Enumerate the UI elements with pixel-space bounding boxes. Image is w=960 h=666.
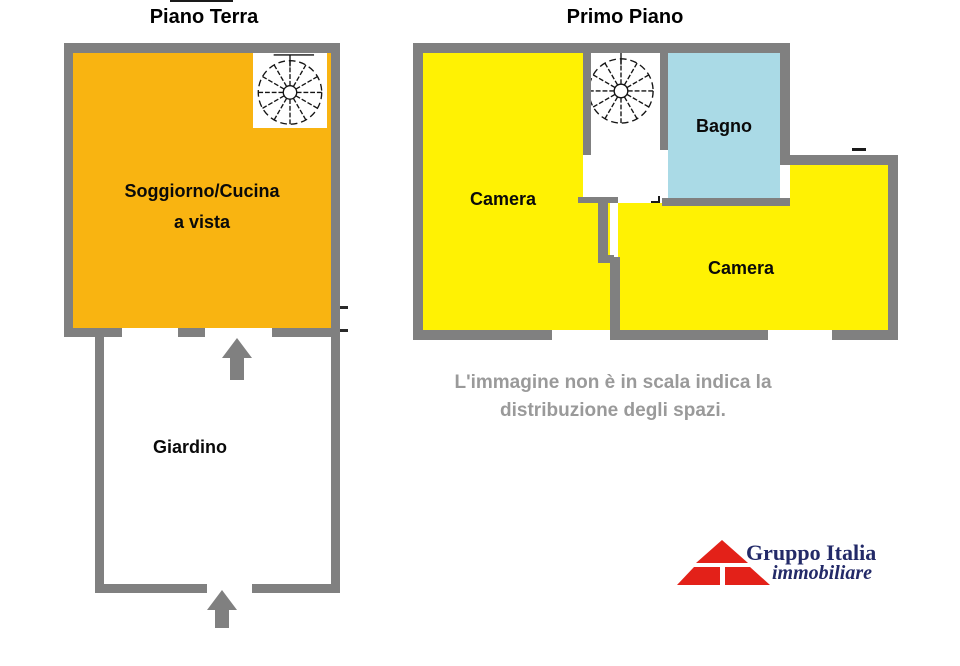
spiral-staircase-icon [253, 53, 327, 128]
top-edge-artifact [170, 0, 233, 2]
disclaimer-line1: L'immagine non è in scala indica la [410, 369, 816, 397]
garden-wall-bottom-left [95, 584, 207, 593]
up-arrow-icon [207, 590, 237, 610]
wall-top [413, 43, 790, 53]
living-room-label-line1: Soggiorno/Cucina [73, 176, 331, 207]
staircase-box [253, 53, 327, 128]
disclaimer-line2: distribuzione degli spazi. [410, 397, 816, 425]
wall-bottom-segment [413, 330, 552, 340]
camera-left-label: Camera [423, 184, 583, 215]
ground-floor-title: Piano Terra [64, 6, 344, 29]
garden-wall-bottom-right [252, 584, 340, 593]
wall-tick [852, 148, 866, 151]
garden-label: Giardino [95, 432, 285, 463]
wall-tick [340, 329, 348, 332]
bathroom-wall-left [660, 53, 668, 150]
wall-top [64, 43, 340, 53]
camera-right-label: Camera [641, 253, 841, 284]
wall-right [888, 155, 898, 340]
wall-bottom-stub [178, 328, 205, 337]
camera-divider-wall [598, 197, 608, 257]
bathroom-wall-right [780, 43, 790, 165]
scale-disclaimer: L'immagine non è in scala indica la dist… [410, 369, 816, 425]
door-swing-mark [658, 196, 660, 203]
living-room-label: Soggiorno/Cucina a vista [73, 176, 331, 238]
camera-right-area [790, 165, 888, 330]
living-room-label-line2: a vista [73, 207, 331, 238]
wall-tick [340, 306, 348, 309]
camera-right-wall-top [780, 155, 898, 165]
arrow-stem [230, 356, 244, 380]
bathroom-wall-bottom [662, 198, 790, 206]
floorplan-canvas: Piano Terra [0, 0, 960, 666]
wall-left [413, 43, 423, 340]
landing-wall-left [583, 53, 591, 155]
wall-bottom-segment [64, 328, 122, 337]
first-floor-title: Primo Piano [480, 6, 770, 29]
spiral-staircase-icon [585, 51, 657, 127]
wall-bottom-segment [272, 328, 340, 337]
wall-left [64, 43, 73, 333]
camera-left-area [423, 203, 610, 330]
wall-right [331, 43, 340, 593]
arrow-stem [215, 608, 229, 628]
up-arrow-icon [222, 338, 252, 358]
bathroom-label: Bagno [668, 111, 780, 142]
wall-bottom-segment [610, 330, 768, 340]
camera-divider-wall [610, 257, 620, 330]
logo-tagline: immobiliare [772, 562, 872, 585]
